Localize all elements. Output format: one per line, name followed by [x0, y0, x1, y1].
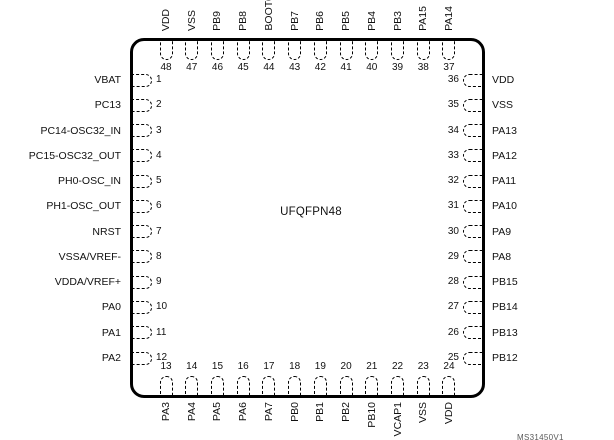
pin-label-37: PA14	[442, 6, 456, 31]
pin-number-25: 25	[433, 352, 459, 364]
pin-number-8: 8	[156, 251, 180, 263]
pin-number-21: 21	[360, 361, 384, 373]
pin-label-5: PH0-OSC_IN	[0, 174, 121, 188]
pin-label-22: VCAP1	[391, 402, 405, 436]
pin-number-30: 30	[433, 226, 459, 238]
pin-label-9: VDDA/VREF+	[0, 275, 121, 289]
pin-pad-8	[131, 250, 152, 263]
pin-label-31: PA10	[492, 199, 612, 213]
pin-number-23: 23	[411, 361, 435, 373]
pin-pad-32	[463, 175, 484, 188]
pin-pad-38	[417, 39, 430, 60]
pin-pad-29	[463, 250, 484, 263]
pin-label-39: PB3	[391, 11, 405, 31]
pin-label-25: PB12	[492, 351, 612, 365]
pin-pad-47	[185, 39, 198, 60]
pin-number-47: 47	[180, 62, 204, 74]
pin-number-37: 37	[437, 62, 461, 74]
pin-pad-5	[131, 175, 152, 188]
pin-label-34: PA13	[492, 124, 612, 138]
pin-pad-43	[288, 39, 301, 60]
pin-pad-39	[391, 39, 404, 60]
pin-label-16: PA6	[236, 402, 250, 421]
pin-number-10: 10	[156, 301, 180, 313]
pin-number-35: 35	[433, 99, 459, 111]
pinout-diagram: UFQFPN48 MS31450V1 48VDD47VSS46PB945PB84…	[0, 0, 614, 440]
figure-id-label: MS31450V1	[517, 433, 564, 440]
pin-pad-48	[160, 39, 173, 60]
pin-number-27: 27	[433, 301, 459, 313]
pin-number-34: 34	[433, 125, 459, 137]
pin-pad-35	[463, 99, 484, 112]
pin-label-35: VSS	[492, 98, 612, 112]
pin-pad-10	[131, 301, 152, 314]
pin-label-43: PB7	[288, 11, 302, 31]
pin-number-28: 28	[433, 276, 459, 288]
pin-pad-34	[463, 124, 484, 137]
pin-pad-37	[442, 39, 455, 60]
pin-label-14: PA4	[185, 402, 199, 421]
pin-number-48: 48	[154, 62, 178, 74]
pin-number-1: 1	[156, 74, 180, 86]
pin-number-7: 7	[156, 226, 180, 238]
pin-number-38: 38	[411, 62, 435, 74]
pin-label-42: PB6	[313, 11, 327, 31]
pin-pad-25	[463, 352, 484, 365]
pin-number-45: 45	[231, 62, 255, 74]
pin-number-31: 31	[433, 200, 459, 212]
pin-label-27: PB14	[492, 300, 612, 314]
pin-pad-15	[211, 376, 224, 397]
pin-number-16: 16	[231, 361, 255, 373]
pin-label-28: PB15	[492, 275, 612, 289]
pin-label-18: PB0	[288, 402, 302, 422]
pin-pad-22	[391, 376, 404, 397]
pin-number-3: 3	[156, 125, 180, 137]
pin-number-29: 29	[433, 251, 459, 263]
pin-number-14: 14	[180, 361, 204, 373]
pin-label-26: PB13	[492, 326, 612, 340]
pin-number-36: 36	[433, 74, 459, 86]
pin-pad-11	[131, 326, 152, 339]
pin-number-44: 44	[257, 62, 281, 74]
pin-number-2: 2	[156, 99, 180, 111]
pin-number-41: 41	[334, 62, 358, 74]
pin-number-26: 26	[433, 327, 459, 339]
pin-number-42: 42	[308, 62, 332, 74]
pin-label-15: PA5	[210, 402, 224, 421]
pin-number-46: 46	[205, 62, 229, 74]
pin-label-32: PA11	[492, 174, 612, 188]
pin-label-24: VDD	[442, 402, 456, 424]
pin-label-6: PH1-OSC_OUT	[0, 199, 121, 213]
pin-pad-12	[131, 352, 152, 365]
pin-pad-19	[314, 376, 327, 397]
pin-number-40: 40	[360, 62, 384, 74]
pin-pad-36	[463, 74, 484, 87]
pin-label-30: PA9	[492, 225, 612, 239]
pin-label-29: PA8	[492, 250, 612, 264]
pin-label-2: PC13	[0, 98, 121, 112]
pin-pad-6	[131, 200, 152, 213]
pin-pad-1	[131, 74, 152, 87]
pin-label-3: PC14-OSC32_IN	[0, 124, 121, 138]
pin-number-33: 33	[433, 150, 459, 162]
pin-label-12: PA2	[0, 351, 121, 365]
pin-pad-21	[365, 376, 378, 397]
pin-pad-33	[463, 149, 484, 162]
pin-pad-4	[131, 149, 152, 162]
pin-pad-24	[442, 376, 455, 397]
pin-label-45: PB8	[236, 11, 250, 31]
pin-pad-20	[340, 376, 353, 397]
pin-number-18: 18	[283, 361, 307, 373]
pin-label-13: PA3	[159, 402, 173, 421]
pin-number-6: 6	[156, 200, 180, 212]
pin-pad-18	[288, 376, 301, 397]
pin-pad-9	[131, 276, 152, 289]
pin-number-12: 12	[156, 352, 180, 364]
pin-pad-26	[463, 326, 484, 339]
pin-number-43: 43	[283, 62, 307, 74]
pin-pad-30	[463, 225, 484, 238]
pin-label-46: PB9	[210, 11, 224, 31]
pin-number-19: 19	[308, 361, 332, 373]
pin-pad-7	[131, 225, 152, 238]
pin-pad-45	[237, 39, 250, 60]
pin-pad-27	[463, 301, 484, 314]
pin-label-36: VDD	[492, 73, 612, 87]
pin-number-22: 22	[386, 361, 410, 373]
pin-pad-28	[463, 276, 484, 289]
pin-pad-31	[463, 200, 484, 213]
pin-number-39: 39	[386, 62, 410, 74]
pin-label-21: PB10	[365, 402, 379, 428]
pin-number-15: 15	[205, 361, 229, 373]
pin-number-20: 20	[334, 361, 358, 373]
package-name-label: UFQFPN48	[261, 205, 361, 219]
pin-label-10: PA0	[0, 300, 121, 314]
pin-label-47: VSS	[185, 10, 199, 31]
pin-number-9: 9	[156, 276, 180, 288]
pin-pad-46	[211, 39, 224, 60]
pin-label-8: VSSA/VREF-	[0, 250, 121, 264]
pin-number-5: 5	[156, 175, 180, 187]
pin-label-17: PA7	[262, 402, 276, 421]
pin-pad-41	[340, 39, 353, 60]
pin-label-33: PA12	[492, 149, 612, 163]
pin-label-1: VBAT	[0, 73, 121, 87]
pin-label-7: NRST	[0, 225, 121, 239]
pin-label-20: PB2	[339, 402, 353, 422]
pin-pad-16	[237, 376, 250, 397]
pin-pad-17	[262, 376, 275, 397]
pin-number-32: 32	[433, 175, 459, 187]
pin-label-48: VDD	[159, 9, 173, 31]
pin-pad-23	[417, 376, 430, 397]
pin-label-40: PB4	[365, 11, 379, 31]
pin-label-11: PA1	[0, 326, 121, 340]
pin-label-41: PB5	[339, 11, 353, 31]
pin-label-44: BOOT0	[262, 0, 276, 31]
pin-pad-2	[131, 99, 152, 112]
pin-pad-13	[160, 376, 173, 397]
pin-label-19: PB1	[313, 402, 327, 422]
pin-pad-44	[262, 39, 275, 60]
pin-number-4: 4	[156, 150, 180, 162]
pin-number-17: 17	[257, 361, 281, 373]
pin-pad-14	[185, 376, 198, 397]
pin-pad-40	[365, 39, 378, 60]
pin-label-23: VSS	[416, 402, 430, 423]
pin-number-11: 11	[156, 327, 180, 339]
pin-pad-3	[131, 124, 152, 137]
pin-pad-42	[314, 39, 327, 60]
pin-label-4: PC15-OSC32_OUT	[0, 149, 121, 163]
pin-label-38: PA15	[416, 6, 430, 31]
